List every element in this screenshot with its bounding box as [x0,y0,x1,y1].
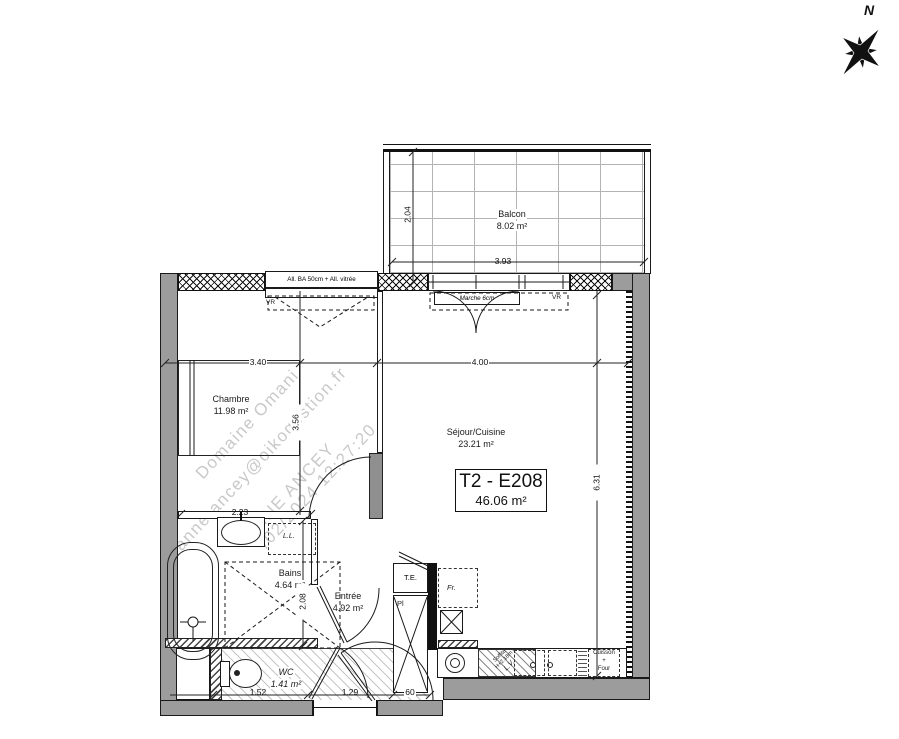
washing-machine-label: L.L. [283,533,295,540]
unit-area: 46.06 m² [456,494,546,508]
entree-name: Entrée [335,591,362,601]
bains-name: Bains [278,568,303,578]
closet-label: Pl [397,599,404,608]
dim-chambre-depth: 3.56 [291,405,302,441]
fridge-label: Fr. [447,583,456,592]
dim-sejour-depth: 6.31 [592,465,603,501]
dim-entree-width: 1.29 [336,687,364,697]
floor-plan: Domaine Omani anne.ancey@oikogestion.fr … [0,0,899,739]
bains-label: Bains 4.64 m² [260,568,320,591]
unit-code: T2 - E208 [456,470,546,494]
balcony-label: Balcon 8.02 m² [477,209,547,232]
wc-name: WC [278,667,295,677]
wc-area: 1.41 m² [270,679,303,689]
dim-placard-width: 60 [398,687,422,697]
balcony-area: 8.02 m² [496,221,529,231]
compass-north-label: N [864,2,874,18]
dim-chambre-width: 3.40 [244,357,272,367]
vr-label-left: VR [266,299,275,306]
sejour-area: 23.21 m² [458,439,494,449]
dim-balcony-width: 3.93 [489,256,517,266]
plan-lines-overlay [0,0,899,739]
dim-wc-width: 1.52 [244,687,272,697]
dim-sejour-width: 4.00 [466,357,494,367]
sejour-label: Séjour/Cuisine 23.21 m² [426,427,526,450]
vr-label-right: VR [552,294,561,301]
dim-bains-depth: 2.08 [298,584,309,620]
unit-label-box: T2 - E208 46.06 m² [455,469,547,512]
entree-area: 4.92 m² [333,603,364,613]
balcony-name: Balcon [497,209,527,219]
chambre-area: 11.98 m² [213,406,250,416]
dim-balcony-depth: 2.04 [403,197,414,233]
chambre-name: Chambre [211,394,250,404]
chambre-label: Chambre 11.98 m² [191,394,271,417]
entree-label: Entrée 4.92 m² [318,591,378,614]
sejour-name: Séjour/Cuisine [447,427,506,437]
